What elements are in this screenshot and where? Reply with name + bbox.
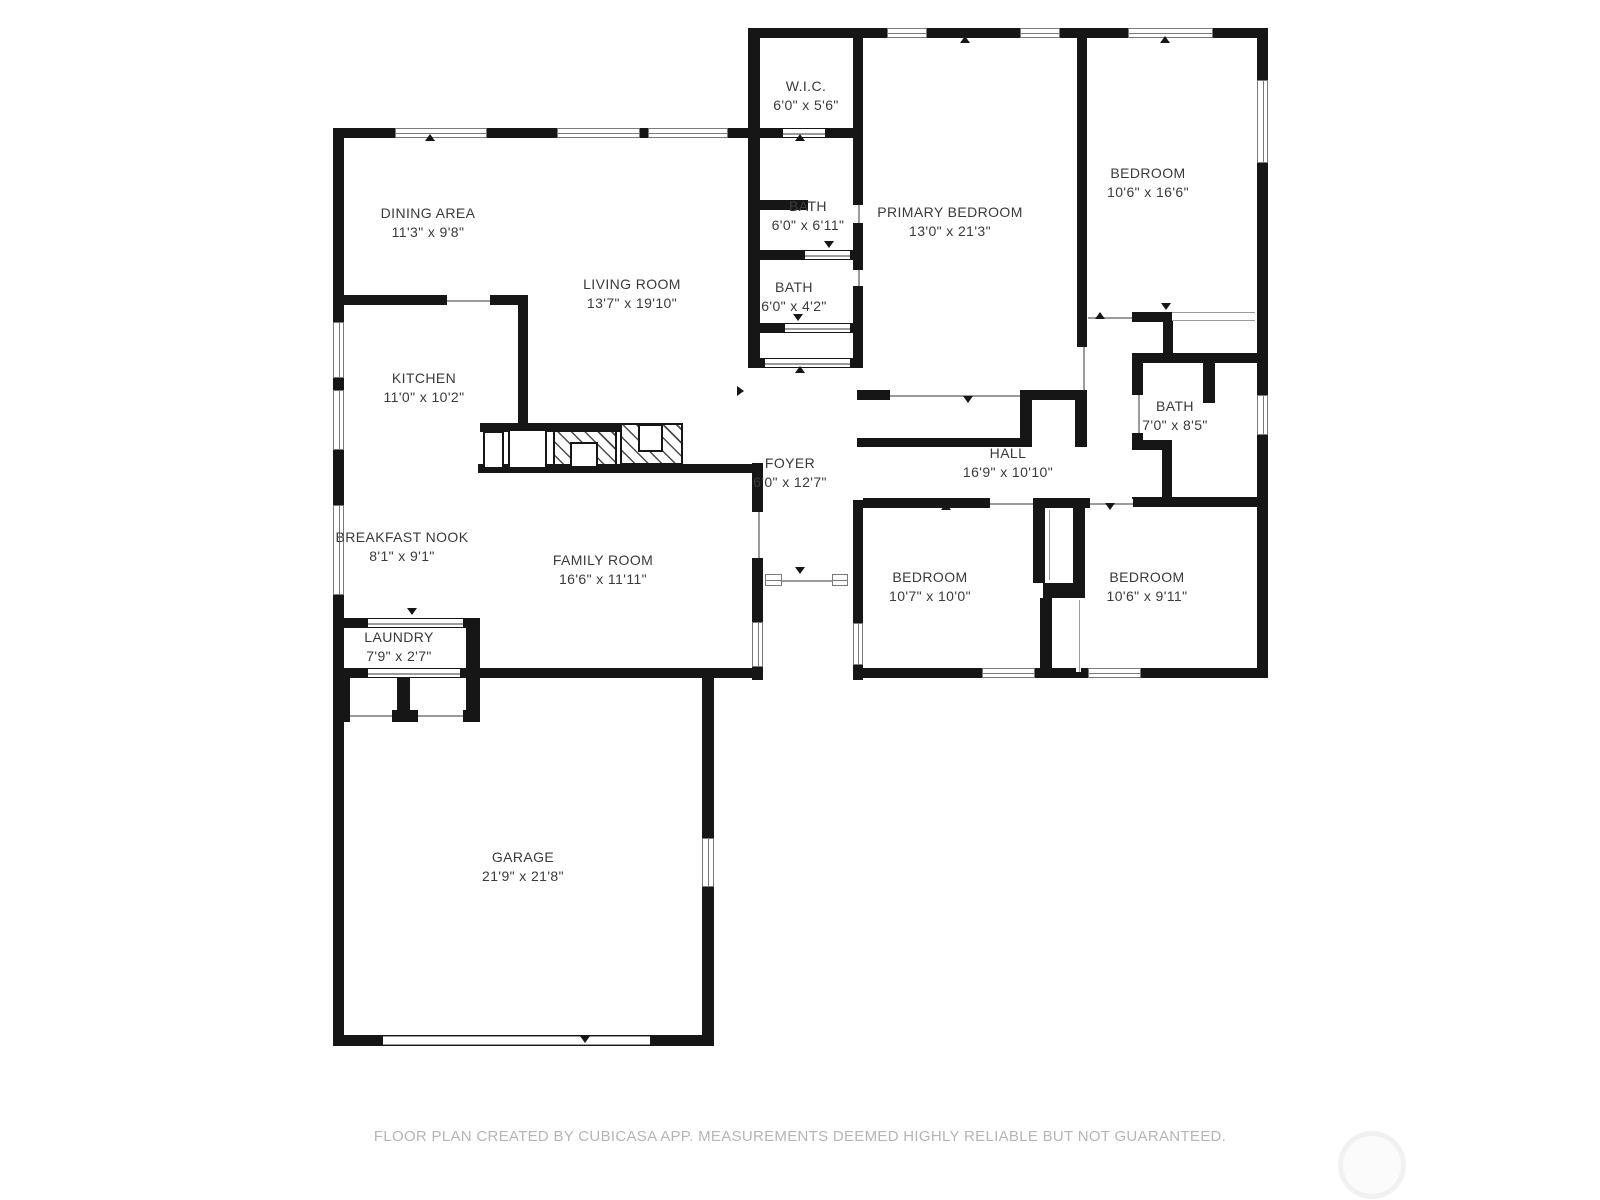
room-name: PRIMARY BEDROOM: [877, 203, 1023, 222]
closet-opening: [418, 711, 463, 719]
window: [887, 28, 927, 38]
room-name: GARAGE: [482, 848, 564, 867]
room-label-foyer: FOYER 6'0" x 12'7": [753, 454, 827, 492]
door-opening: [754, 512, 762, 558]
room-label-dining-area: DINING AREA 11'3" x 9'8": [381, 204, 476, 242]
room-name: BEDROOM: [1107, 568, 1188, 587]
wall: [338, 710, 350, 722]
room-dims: 21'9" x 21'8": [482, 867, 564, 886]
window: [333, 322, 344, 378]
door-arrow: [425, 134, 435, 141]
window: [853, 623, 863, 665]
appliance-box: [508, 429, 547, 469]
window: [1257, 395, 1268, 435]
room-dims: 10'6" x 9'11": [1107, 587, 1188, 606]
room-label-hall: HALL 16'9" x 10'10": [963, 444, 1053, 482]
door-opening: [805, 251, 850, 259]
room-name: FAMILY ROOM: [553, 551, 653, 570]
door-arrow: [407, 608, 417, 615]
room-label-bath-ensuite: BATH 6'0" x 6'11": [772, 197, 845, 235]
closet-doors: [1046, 510, 1051, 580]
room-name: BATH: [761, 278, 827, 297]
door-arrow: [580, 1036, 590, 1043]
window: [752, 622, 763, 667]
wall: [1132, 353, 1257, 363]
door-arrow: [795, 134, 805, 141]
entry-sidelight-window: [765, 574, 782, 586]
garage-door-opening: [383, 1036, 650, 1045]
door-opening: [785, 324, 850, 332]
door-arrow: [1095, 312, 1105, 319]
wall: [466, 618, 480, 678]
watermark-circle-logo: [1338, 1131, 1406, 1199]
appliance-box: [483, 431, 504, 469]
door-arrow: [941, 503, 951, 510]
wall: [1203, 353, 1215, 403]
door-arrow: [795, 366, 805, 373]
room-dims: 6'0" x 5'6": [773, 96, 839, 115]
wall: [463, 710, 480, 722]
wall: [518, 295, 528, 432]
wall: [1077, 28, 1087, 347]
closet-doors: [1172, 312, 1255, 321]
room-dims: 13'7" x 19'10": [583, 294, 681, 313]
door-opening: [447, 296, 490, 304]
room-label-wic: W.I.C. 6'0" x 5'6": [773, 77, 839, 115]
wall: [863, 498, 990, 508]
wall: [1132, 497, 1268, 507]
room-label-bedroom-bottom-right: BEDROOM 10'6" x 9'11": [1107, 568, 1188, 606]
door-opening: [853, 270, 863, 286]
door-arrow: [737, 386, 744, 396]
room-name: LAUNDRY: [364, 628, 433, 647]
door-arrow: [795, 567, 805, 574]
room-name: DINING AREA: [381, 204, 476, 223]
window: [1088, 668, 1141, 678]
window: [333, 390, 344, 450]
garage-side-door: [702, 838, 714, 887]
wall: [853, 668, 1268, 678]
room-name: LIVING ROOM: [583, 275, 681, 294]
room-dims: 13'0" x 21'3": [877, 222, 1023, 241]
room-name: FOYER: [753, 454, 827, 473]
wall: [752, 558, 763, 622]
door-opening: [1134, 395, 1142, 433]
door-arrow: [963, 396, 973, 403]
wall: [1040, 598, 1052, 678]
room-name: BATH: [1142, 397, 1208, 416]
window: [1020, 28, 1060, 38]
floor-plan-canvas: W.I.C. 6'0" x 5'6" DINING AREA 11'3" x 9…: [0, 0, 1600, 1200]
window: [557, 128, 640, 138]
wall: [333, 295, 447, 305]
room-name: BATH: [772, 197, 845, 216]
room-name: HALL: [963, 444, 1053, 463]
room-label-kitchen: KITCHEN 11'0" x 10'2": [384, 369, 465, 407]
passage-opening: [765, 359, 850, 367]
room-label-bath-small: BATH 6'0" x 4'2": [761, 278, 827, 316]
wall: [1043, 583, 1085, 598]
wall: [1033, 498, 1045, 583]
room-label-primary-bedroom: PRIMARY BEDROOM 13'0" x 21'3": [877, 203, 1023, 241]
door-opening: [990, 499, 1033, 507]
window: [395, 128, 487, 138]
room-dims: 11'0" x 10'2": [384, 388, 465, 407]
room-dims: 11'3" x 9'8": [381, 223, 476, 242]
room-name: BEDROOM: [889, 568, 971, 587]
door-opening: [368, 619, 463, 627]
room-dims: 7'0" x 8'5": [1142, 416, 1208, 435]
wall: [853, 138, 863, 368]
door-opening: [368, 669, 460, 677]
door-opening: [853, 205, 863, 223]
stove: [638, 424, 663, 452]
room-label-living-room: LIVING ROOM 13'7" x 19'10": [583, 275, 681, 313]
wall: [1162, 448, 1172, 498]
room-label-bedroom-top-right: BEDROOM 10'6" x 16'6": [1107, 164, 1189, 202]
closet-opening: [890, 391, 1020, 399]
room-dims: 6'0" x 12'7": [753, 473, 827, 492]
room-label-laundry: LAUNDRY 7'9" x 2'7": [364, 628, 433, 666]
door-arrow: [1160, 36, 1170, 43]
front-door-opening: [782, 576, 832, 584]
door-arrow: [1161, 303, 1171, 310]
room-dims: 16'6" x 11'11": [553, 570, 653, 589]
kitchen-sink: [570, 442, 598, 468]
room-dims: 6'0" x 6'11": [772, 216, 845, 235]
room-dims: 8'1" x 9'1": [336, 547, 469, 566]
wall: [1020, 390, 1032, 447]
window: [1257, 80, 1268, 163]
wall: [857, 390, 890, 400]
room-label-breakfast-nook: BREAKFAST NOOK 8'1" x 9'1": [336, 528, 469, 566]
window: [1128, 28, 1213, 38]
room-label-garage: GARAGE 21'9" x 21'8": [482, 848, 564, 886]
closet-opening: [350, 711, 392, 719]
closet-doors: [1076, 600, 1081, 672]
wall: [1075, 390, 1087, 447]
room-dims: 6'0" x 4'2": [761, 297, 827, 316]
room-name: BEDROOM: [1107, 164, 1189, 183]
door-opening: [1079, 347, 1087, 390]
wall: [853, 28, 863, 138]
room-label-bath-hall: BATH 7'0" x 8'5": [1142, 397, 1208, 435]
wall: [392, 710, 418, 722]
door-arrow: [824, 241, 834, 248]
room-name: KITCHEN: [384, 369, 465, 388]
room-label-family-room: FAMILY ROOM 16'6" x 11'11": [553, 551, 653, 589]
room-name: W.I.C.: [773, 77, 839, 96]
room-dims: 16'9" x 10'10": [963, 463, 1053, 482]
window: [648, 128, 728, 138]
room-dims: 10'7" x 10'0": [889, 587, 971, 606]
window: [982, 668, 1035, 678]
door-arrow: [960, 36, 970, 43]
wall: [1132, 353, 1143, 395]
wall: [748, 28, 760, 368]
room-label-bedroom-bottom-left: BEDROOM 10'7" x 10'0": [889, 568, 971, 606]
room-name: BREAKFAST NOOK: [336, 528, 469, 547]
door-arrow: [1105, 503, 1115, 510]
entry-sidelight-window: [832, 574, 848, 586]
room-dims: 7'9" x 2'7": [364, 647, 433, 666]
room-dims: 10'6" x 16'6": [1107, 183, 1189, 202]
